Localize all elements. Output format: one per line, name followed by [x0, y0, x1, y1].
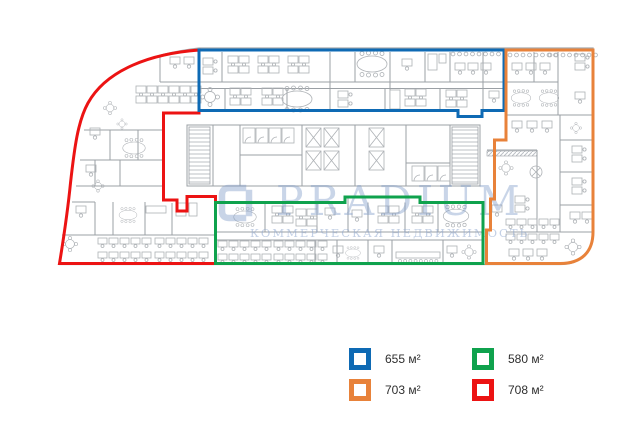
legend-swatch-orange: [349, 379, 371, 401]
legend-item-red: 708 м²: [472, 379, 595, 401]
legend-item-orange: 703 м²: [349, 379, 472, 401]
legend-swatch-green: [472, 348, 494, 370]
legend-label-orange: 703 м²: [385, 383, 421, 397]
floorplan-page: PRADIUM КОММЕРЧЕСКАЯ НЕДВИЖИМОСТЬ 655 м²…: [0, 0, 643, 426]
legend-swatch-blue: [349, 348, 371, 370]
legend-label-green: 580 м²: [508, 352, 544, 366]
legend-swatch-red: [472, 379, 494, 401]
legend-label-blue: 655 м²: [385, 352, 421, 366]
legend-item-green: 580 м²: [472, 348, 595, 370]
legend-item-blue: 655 м²: [349, 348, 472, 370]
legend: 655 м² 580 м² 703 м² 708 м²: [349, 348, 595, 401]
zone-outline-blue: [199, 50, 504, 117]
legend-label-red: 708 м²: [508, 383, 544, 397]
